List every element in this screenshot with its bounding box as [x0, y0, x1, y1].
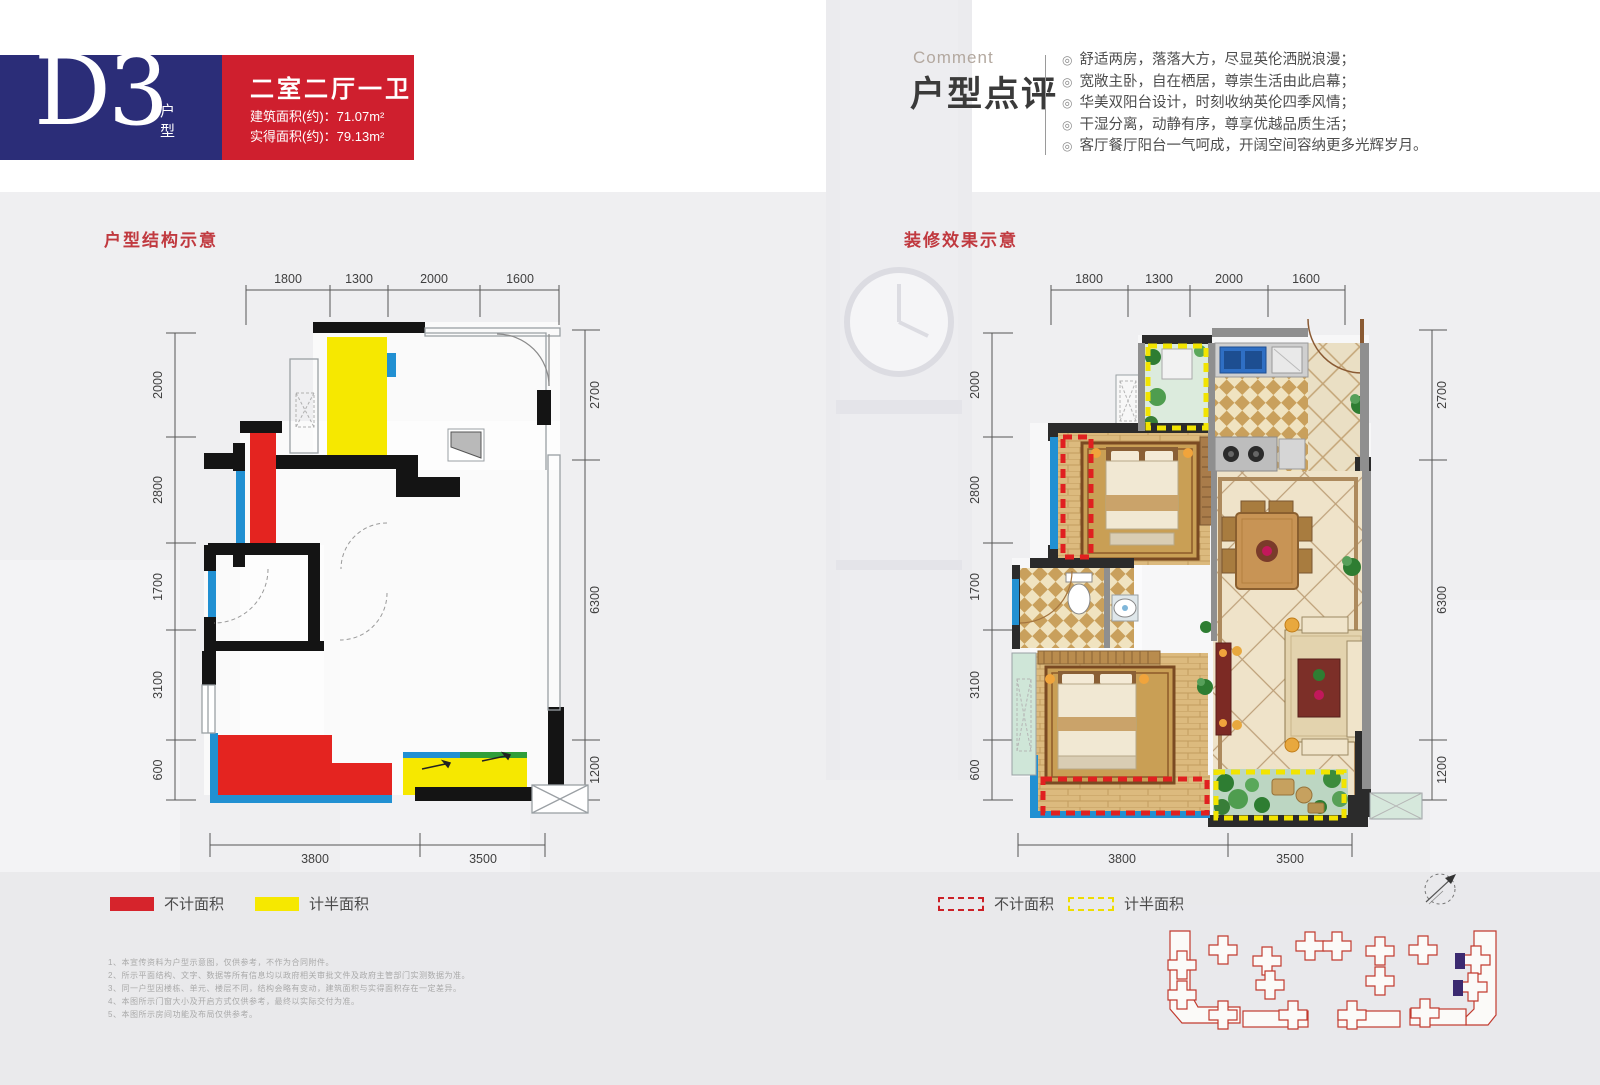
note-line: 4、本图所示门窗大小及开启方式仅供参考，最终以实际交付为准。 — [108, 995, 488, 1008]
dim-label: 1200 — [1435, 756, 1449, 784]
built-area-line: 建筑面积(约)：71.07m² — [250, 106, 384, 125]
dim-label: 2700 — [588, 381, 602, 409]
dim-label: 600 — [151, 760, 165, 781]
bullet-icon: ◎ — [1062, 115, 1072, 137]
bullet-icon: ◎ — [1062, 93, 1072, 115]
side-bay-excluded-area — [250, 433, 276, 555]
actual-area-line: 实得面积(约)：79.13m² — [250, 126, 384, 145]
unit-code-suffix: 户型 — [156, 103, 177, 143]
dim-label: 3500 — [1276, 852, 1304, 866]
bullet-icon: ◎ — [1062, 72, 1072, 94]
unit-badge: D3 户型 二室二厅一卫 建筑面积(约)：71.07m² 实得面积(约)：79.… — [0, 55, 414, 160]
legend-excluded-area-dashed: 不计面积 — [938, 893, 1054, 914]
note-line: 2、所示平面结构、文字、数据等所有信息均以政府相关审批文件及政府主管部门实测数据… — [108, 969, 488, 982]
dim-label: 3800 — [1108, 852, 1136, 866]
dim-label: 1200 — [588, 756, 602, 784]
comment-divider — [1045, 55, 1046, 155]
dim-label: 1300 — [345, 272, 373, 286]
dim-label: 1800 — [1075, 272, 1103, 286]
comment-bullet: ◎华美双阳台设计，时刻收纳英伦四季风情； — [1062, 93, 1462, 115]
legend-half-area: 计半面积 — [255, 893, 369, 914]
dim-label: 2800 — [151, 476, 165, 504]
bullet-icon: ◎ — [1062, 50, 1072, 72]
bullet-icon: ◎ — [1062, 136, 1072, 158]
dim-label: 2000 — [1215, 272, 1243, 286]
bullet-text: 华美双阳台设计，时刻收纳英伦四季风情； — [1079, 93, 1355, 115]
legend-label: 不计面积 — [994, 893, 1054, 914]
decorated-floorplan: 1800 1300 2000 1600 2000 2800 1700 3100 … — [900, 255, 1460, 870]
dim-label: 3100 — [151, 671, 165, 699]
closet-row — [1038, 651, 1160, 664]
legend-swatch-yellow — [255, 897, 299, 911]
comment-eyebrow: Comment — [913, 48, 994, 68]
comment-bullet: ◎舒适两房，落落大方，尽显英伦洒脱浪漫； — [1062, 50, 1462, 72]
legend-swatch-red-dashed — [938, 897, 984, 911]
structural-floorplan: 1800 1300 2000 1600 2000 2800 1700 3100 … — [100, 255, 620, 870]
master-bed — [1082, 443, 1198, 559]
dim-label: 1300 — [1145, 272, 1173, 286]
balcony-rail-blue — [403, 752, 460, 758]
bullet-text: 宽敞主卧，自在栖居，尊崇生活由此启幕； — [1079, 72, 1355, 94]
legend-label: 计半面积 — [309, 893, 369, 914]
dim-label: 1700 — [968, 573, 982, 601]
top-balcony-half-area — [327, 337, 387, 455]
dim-label: 2000 — [968, 371, 982, 399]
second-bed — [1045, 667, 1174, 783]
dim-label: 3800 — [301, 852, 329, 866]
comment-bullet: ◎干湿分离，动静有序，尊享优越品质生活； — [1062, 115, 1462, 137]
dim-label: 1600 — [1292, 272, 1320, 286]
unit-layout-title: 二室二厅一卫 — [250, 69, 412, 104]
comment-bullet-list: ◎舒适两房，落落大方，尽显英伦洒脱浪漫； ◎宽敞主卧，自在栖居，尊崇生活由此启幕… — [1062, 50, 1462, 158]
unit-code: D3 — [34, 39, 166, 145]
disclaimer-notes: 1、本宣传资料为户型示意图，仅供参考，不作为合同附件。 2、所示平面结构、文字、… — [108, 956, 488, 1021]
structural-plan-title: 户型结构示意 — [104, 226, 218, 251]
unit-badge-blue-panel: D3 户型 — [0, 55, 222, 160]
bullet-text: 客厅餐厅阳台一气呵成，开阔空间容纳更多光辉岁月。 — [1079, 136, 1427, 158]
comment-title: 户型点评 — [910, 66, 1058, 117]
bullet-text: 舒适两房，落落大方，尽显英伦洒脱浪漫； — [1079, 50, 1355, 72]
unit-badge-red-panel: 二室二厅一卫 建筑面积(约)：71.07m² 实得面积(约)：79.13m² — [222, 55, 414, 160]
dim-label: 1800 — [274, 272, 302, 286]
dim-label: 1700 — [151, 573, 165, 601]
legend-swatch-red — [110, 897, 154, 911]
dim-label: 600 — [968, 760, 982, 781]
decorated-plan-title: 装修效果示意 — [904, 226, 1018, 251]
note-line: 5、本图所示房间功能及布局仅供参考。 — [108, 1008, 488, 1021]
building-footprints — [1168, 931, 1496, 1029]
dim-label: 2800 — [968, 476, 982, 504]
site-plan — [1128, 903, 1518, 1083]
dim-label: 6300 — [1435, 586, 1449, 614]
brochure-page: D3 户型 二室二厅一卫 建筑面积(约)：71.07m² 实得面积(约)：79.… — [0, 0, 1600, 1085]
legend-swatch-yellow-dashed — [1068, 897, 1114, 911]
dim-label: 2000 — [151, 371, 165, 399]
dim-label: 2000 — [420, 272, 448, 286]
note-line: 3、同一户型因楼栋、单元、楼层不同，结构会略有变动，建筑面积与实得面积存在一定差… — [108, 982, 488, 995]
bullet-text: 干湿分离，动静有序，尊享优越品质生活； — [1079, 115, 1355, 137]
dim-label: 1600 — [506, 272, 534, 286]
legend-label: 不计面积 — [164, 893, 224, 914]
note-line: 1、本宣传资料为户型示意图，仅供参考，不作为合同附件。 — [108, 956, 488, 969]
balcony-rail-green — [460, 752, 527, 758]
entry-cabinet — [448, 429, 484, 461]
comment-bullet: ◎客厅餐厅阳台一气呵成，开阔空间容纳更多光辉岁月。 — [1062, 136, 1462, 158]
dim-label: 6300 — [588, 586, 602, 614]
shaft-x-symbol — [1116, 375, 1140, 427]
dim-label: 3100 — [968, 671, 982, 699]
comment-bullet: ◎宽敞主卧，自在栖居，尊崇生活由此启幕； — [1062, 72, 1462, 94]
legend-excluded-area: 不计面积 — [110, 893, 224, 914]
dim-label: 3500 — [469, 852, 497, 866]
dim-label: 2700 — [1435, 381, 1449, 409]
